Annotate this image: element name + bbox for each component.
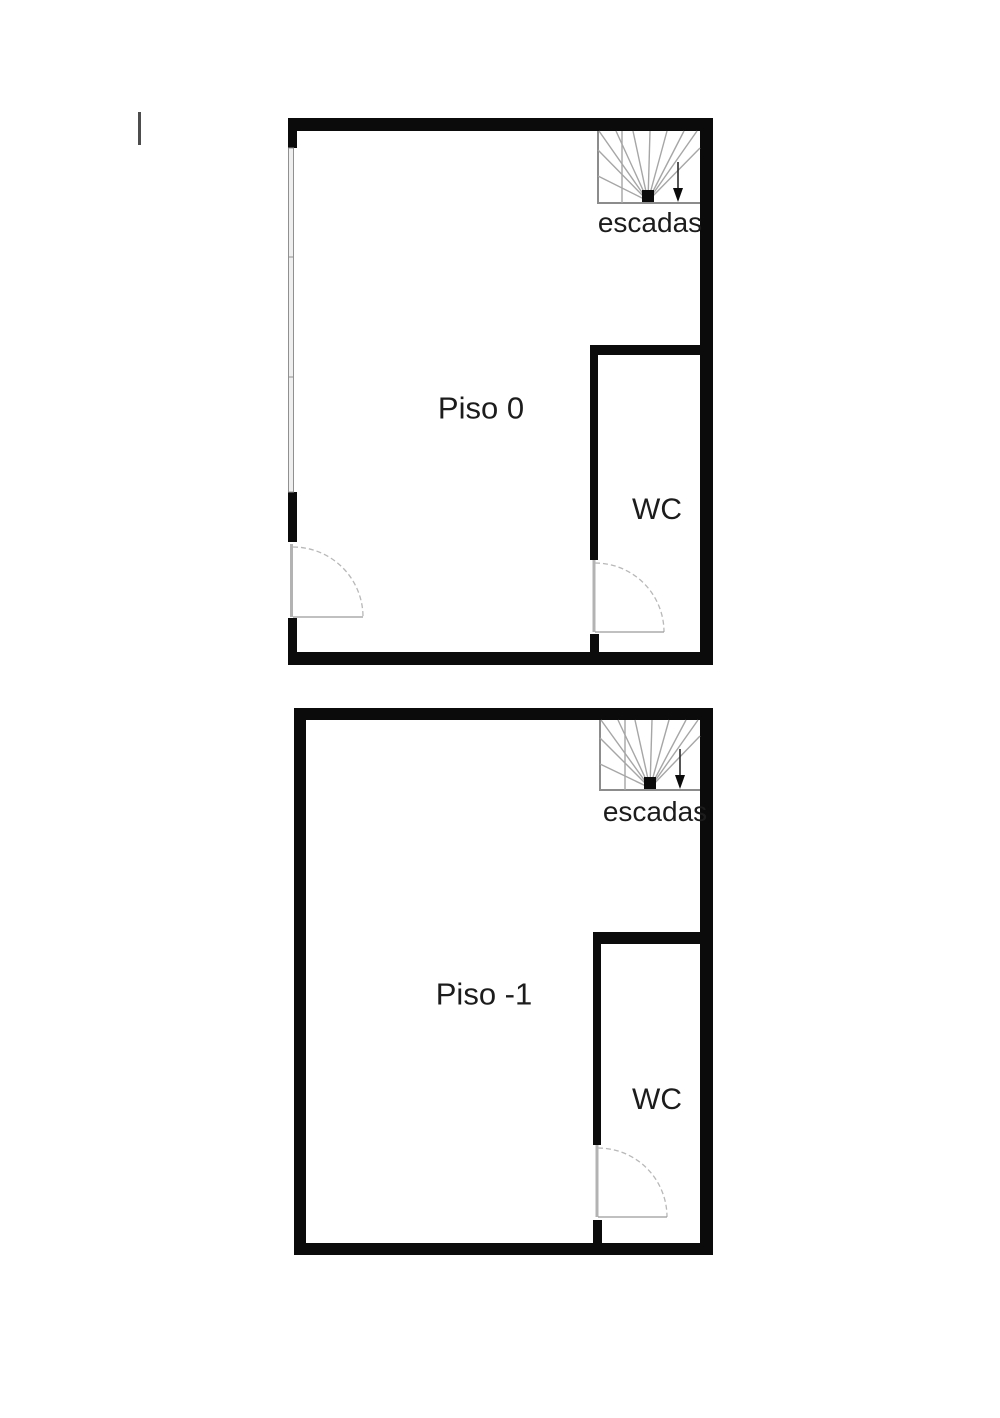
stairs-label-piso-0: escadas: [598, 209, 702, 237]
floor-label-piso-minus-1: Piso -1: [436, 979, 532, 1010]
stairs-start-marker: [644, 777, 656, 789]
room-label-wc-piso-minus-1: WC: [632, 1085, 682, 1115]
wc-door: [594, 560, 664, 632]
stairs-icon: [597, 131, 700, 203]
entry-door: [292, 544, 364, 617]
floorplan-canvas: Piso 0 WC escadas: [0, 0, 1000, 1418]
floor-label-piso-0: Piso 0: [438, 393, 524, 424]
floor-plan-piso-minus-1: Piso -1 WC escadas: [294, 708, 713, 1255]
stray-mark: [138, 112, 141, 145]
stairs-start-marker: [642, 190, 654, 202]
stairs-direction-arrow: [675, 749, 685, 789]
room-label-wc-piso-0: WC: [632, 495, 682, 525]
window-wall: [288, 148, 294, 492]
floor-plan-piso-0: Piso 0 WC escadas: [288, 118, 713, 665]
wc-door: [597, 1145, 667, 1217]
stairs-label-piso-minus-1: escadas: [603, 798, 707, 826]
stairs-direction-arrow: [673, 162, 683, 202]
stairs-icon: [599, 720, 700, 790]
